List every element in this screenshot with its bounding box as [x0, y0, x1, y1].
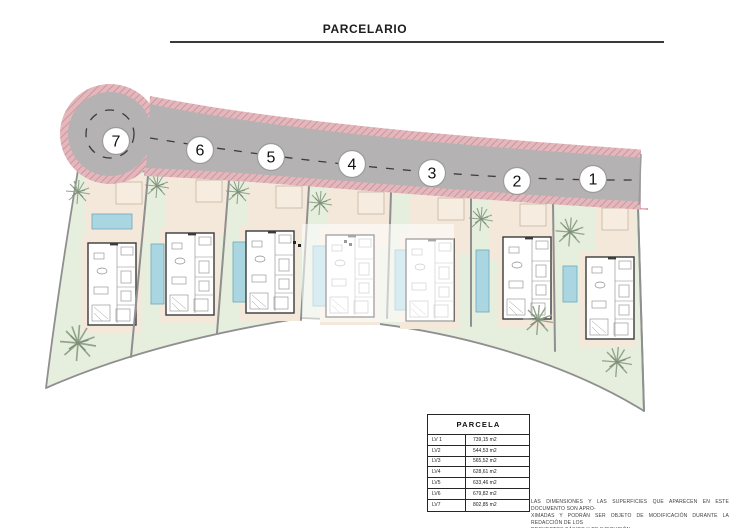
table-row: LV7 802,85 m2	[428, 500, 529, 511]
parcel-label: LV6	[428, 489, 466, 499]
svg-text:6: 6	[196, 143, 205, 160]
road-marker-2: 2	[504, 168, 531, 195]
villa-floorplan	[166, 233, 214, 315]
parcel-label: LV2	[428, 446, 466, 456]
parcel-area: 679,82 m2	[466, 489, 529, 499]
parcel-area: 628,61 m2	[466, 467, 529, 477]
parcel-area: 544,53 m2	[466, 446, 529, 456]
disclaimer-line: LAS DIMENSIONES Y LAS SUPERFICIES QUE AP…	[531, 499, 729, 513]
parcel-area: 565,52 m2	[466, 457, 529, 467]
svg-text:7: 7	[112, 134, 121, 151]
table-header: PARCELA	[428, 415, 529, 435]
villa-floorplan	[586, 257, 634, 339]
road-marker-6: 6	[187, 137, 214, 164]
pool	[563, 266, 577, 302]
parcel-area: 739,15 m2	[466, 435, 529, 445]
site-plan-sheet: PARCELARIO	[0, 0, 756, 528]
villa-floorplan	[246, 231, 294, 313]
pool	[233, 242, 246, 302]
villa-floorplan	[503, 237, 551, 319]
parcel-label: LV5	[428, 478, 466, 488]
table-row: LV3 565,52 m2	[428, 457, 529, 468]
table-row: LV6 679,82 m2	[428, 489, 529, 500]
svg-text:4: 4	[348, 157, 357, 174]
disclaimer: LAS DIMENSIONES Y LAS SUPERFICIES QUE AP…	[531, 499, 729, 528]
table-row: LV4 628,61 m2	[428, 467, 529, 478]
pool	[151, 244, 164, 304]
parcel-area: 633,46 m2	[466, 478, 529, 488]
pool	[476, 250, 489, 312]
parcel-label: LV4	[428, 467, 466, 477]
road-marker-4: 4	[339, 151, 366, 178]
parcel-label: LV 1	[428, 435, 466, 445]
parcel-area: 802,85 m2	[466, 500, 529, 511]
svg-text:3: 3	[428, 166, 437, 183]
table-row: LV5 633,46 m2	[428, 478, 529, 489]
svg-text:2: 2	[513, 174, 522, 191]
parcel-label: LV3	[428, 457, 466, 467]
road-marker-7: 7	[103, 128, 130, 155]
svg-text:5: 5	[267, 150, 276, 167]
svg-text:1: 1	[589, 172, 598, 189]
pool	[92, 214, 132, 229]
site-plan: 7 6 5 4 3 2 1	[0, 0, 756, 528]
watermark	[302, 224, 454, 322]
disclaimer-line: XIMADAS Y PODRÁN SER OBJETO DE MODIFICAC…	[531, 513, 729, 527]
parcela-table: PARCELA LV 1 739,15 m2 LV2 544,53 m2 LV3…	[427, 414, 530, 512]
villa-floorplan	[88, 243, 136, 325]
road-marker-5: 5	[258, 144, 285, 171]
table-row: LV 1 739,15 m2	[428, 435, 529, 446]
parcel-label: LV7	[428, 500, 466, 511]
road-marker-1: 1	[580, 166, 607, 193]
table-row: LV2 544,53 m2	[428, 446, 529, 457]
road-marker-3: 3	[419, 160, 446, 187]
